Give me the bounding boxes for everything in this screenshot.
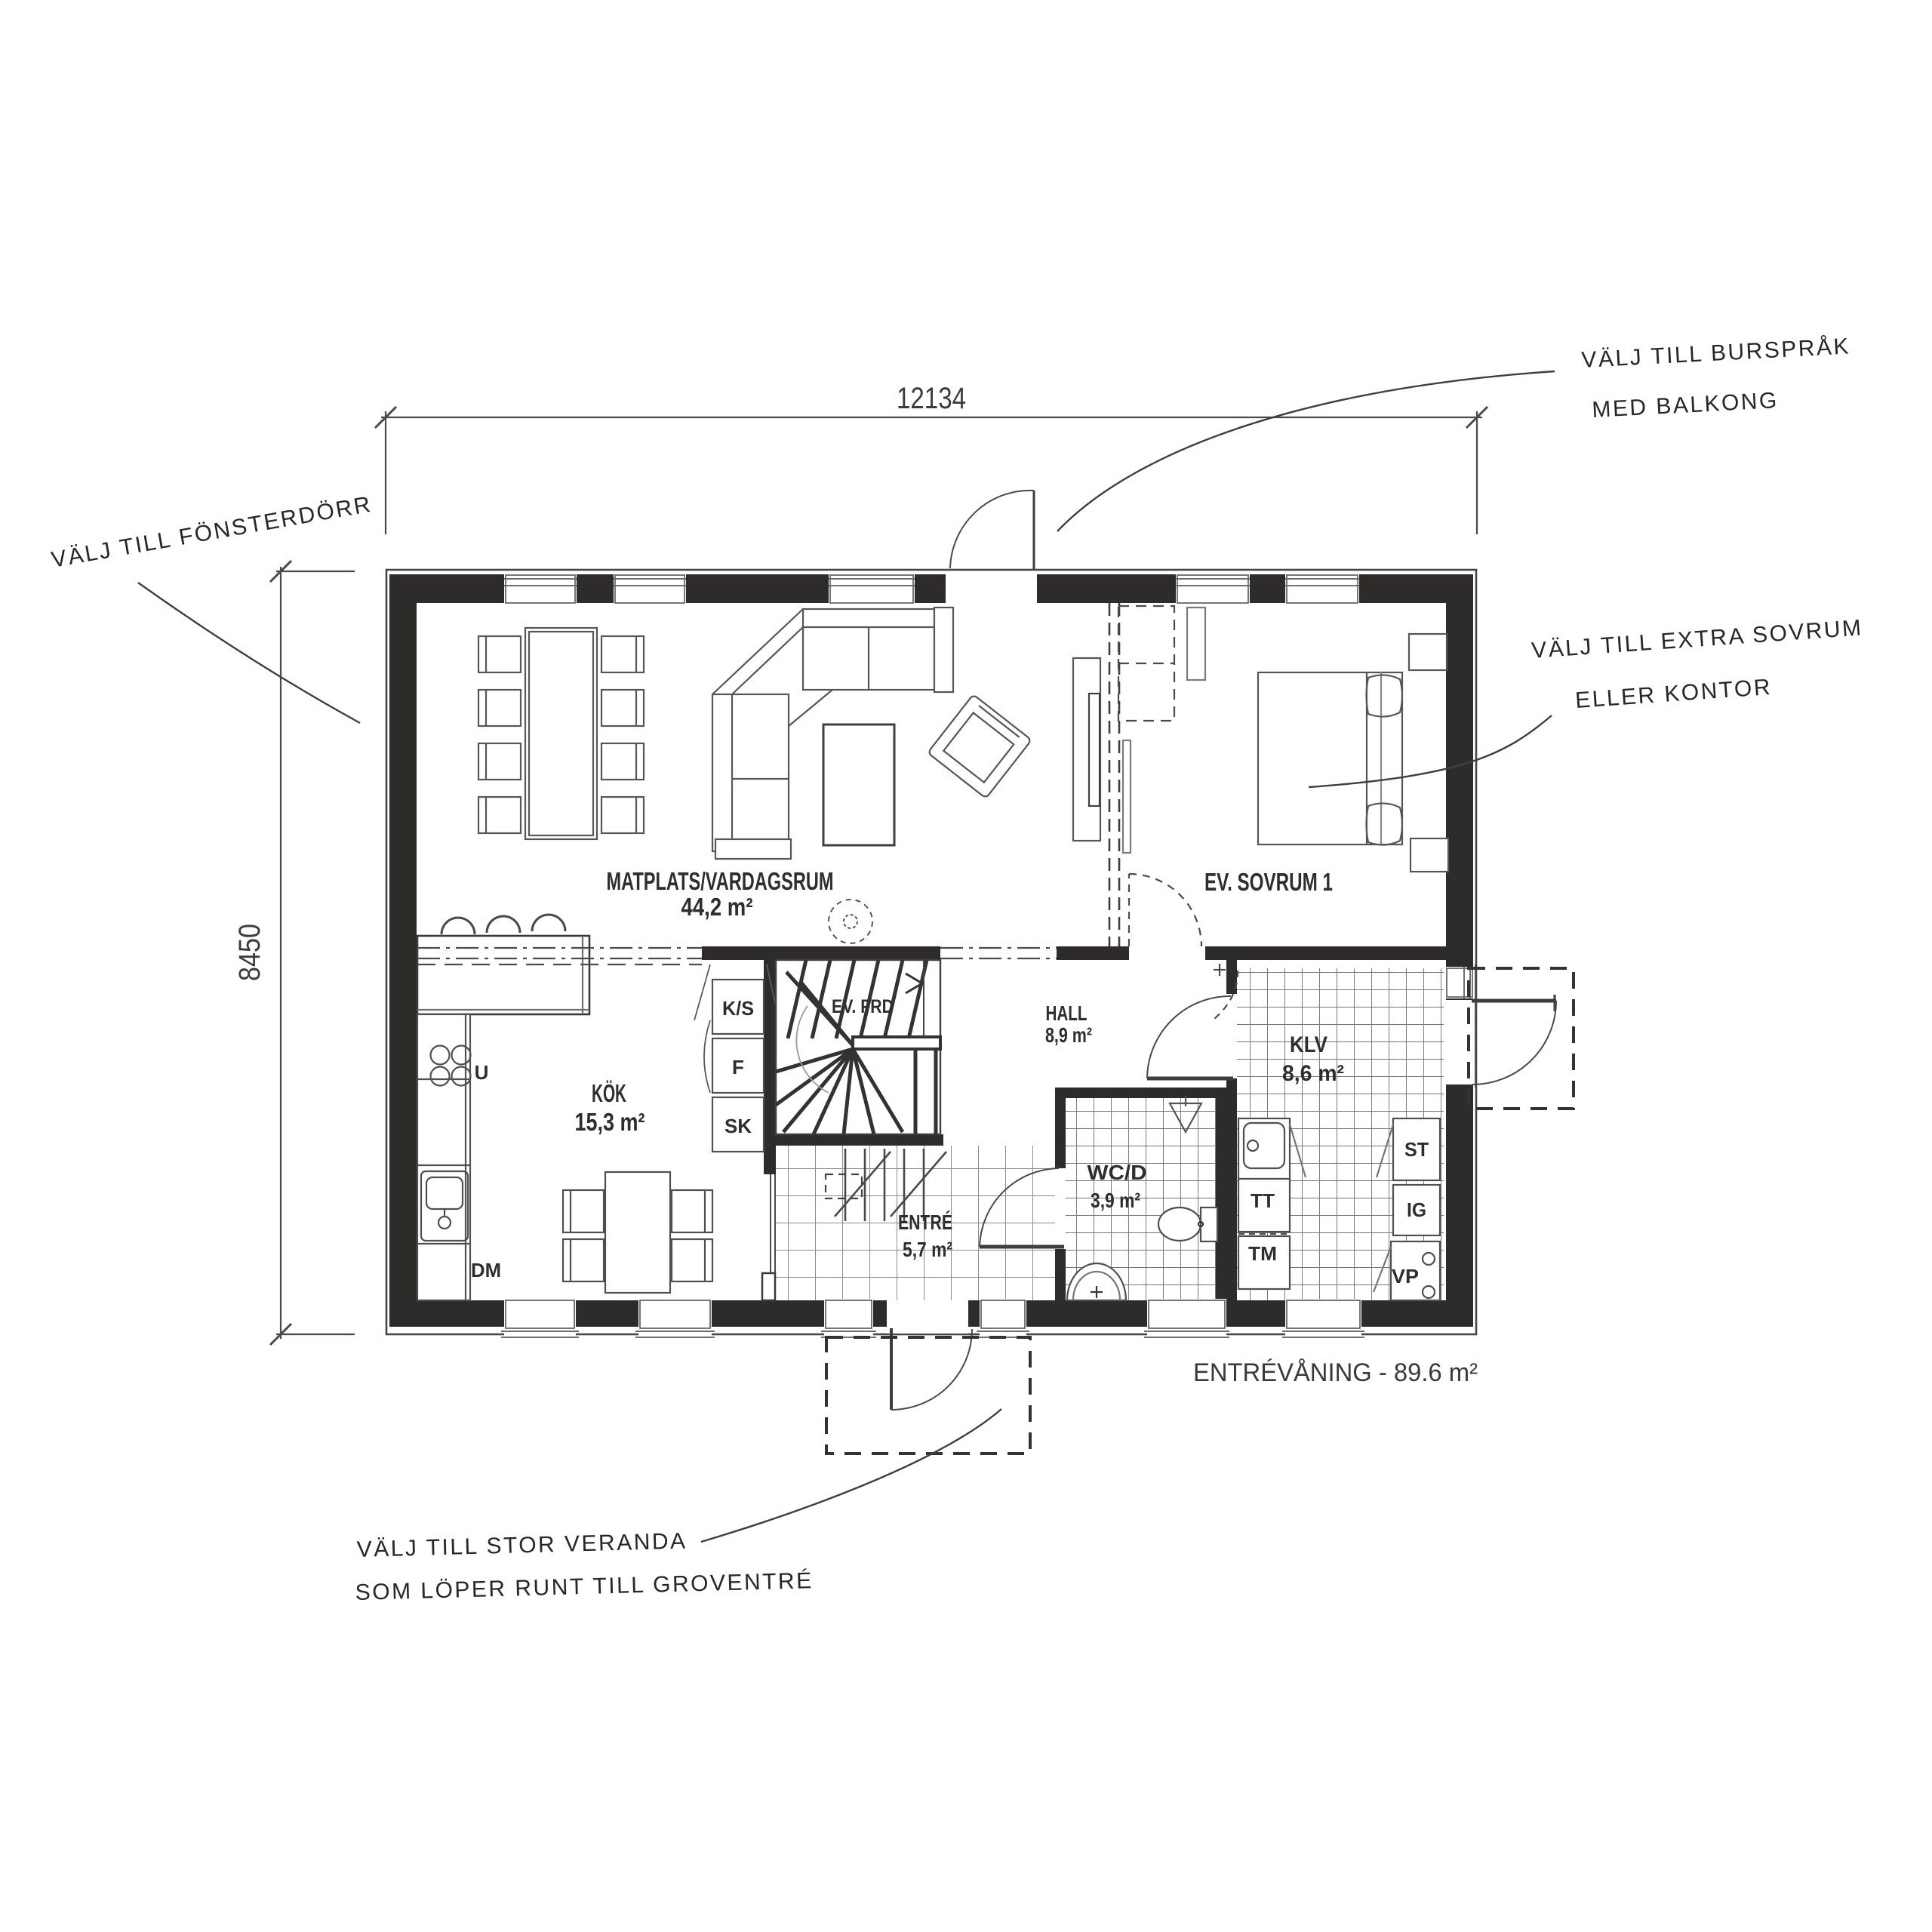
svg-text:K/S: K/S <box>722 997 754 1020</box>
svg-text:VP: VP <box>1392 1265 1419 1287</box>
svg-text:8,6 m²: 8,6 m² <box>1282 1061 1344 1086</box>
svg-text:F: F <box>732 1056 744 1078</box>
svg-text:KÖK: KÖK <box>592 1079 626 1107</box>
svg-text:8450: 8450 <box>233 924 266 981</box>
svg-text:8,9 m²: 8,9 m² <box>1045 1023 1092 1047</box>
svg-text:EV. FRD: EV. FRD <box>832 996 894 1017</box>
svg-text:EV. SOVRUM 1: EV. SOVRUM 1 <box>1204 868 1333 896</box>
svg-text:ST: ST <box>1404 1138 1429 1161</box>
svg-text:MATPLATS/VARDAGSRUM: MATPLATS/VARDAGSRUM <box>607 867 834 895</box>
svg-text:12134: 12134 <box>897 382 966 415</box>
svg-text:TM: TM <box>1248 1242 1277 1265</box>
svg-text:TT: TT <box>1251 1189 1275 1212</box>
svg-text:ENTRÉ: ENTRÉ <box>898 1211 952 1234</box>
svg-text:ENTRÉVÅNING - 89.6 m²: ENTRÉVÅNING - 89.6 m² <box>1193 1358 1478 1387</box>
svg-text:WC/D: WC/D <box>1088 1161 1147 1184</box>
svg-text:SK: SK <box>724 1115 752 1137</box>
svg-text:HALL: HALL <box>1046 1001 1088 1025</box>
svg-text:44,2 m²: 44,2 m² <box>681 893 753 921</box>
svg-text:5,7 m²: 5,7 m² <box>903 1238 952 1261</box>
svg-text:DM: DM <box>471 1259 501 1281</box>
svg-text:15,3 m²: 15,3 m² <box>575 1108 645 1136</box>
svg-text:IG: IG <box>1407 1198 1426 1221</box>
svg-text:KLV: KLV <box>1290 1032 1327 1057</box>
svg-text:U: U <box>475 1061 489 1084</box>
svg-text:3,9 m²: 3,9 m² <box>1091 1189 1140 1212</box>
